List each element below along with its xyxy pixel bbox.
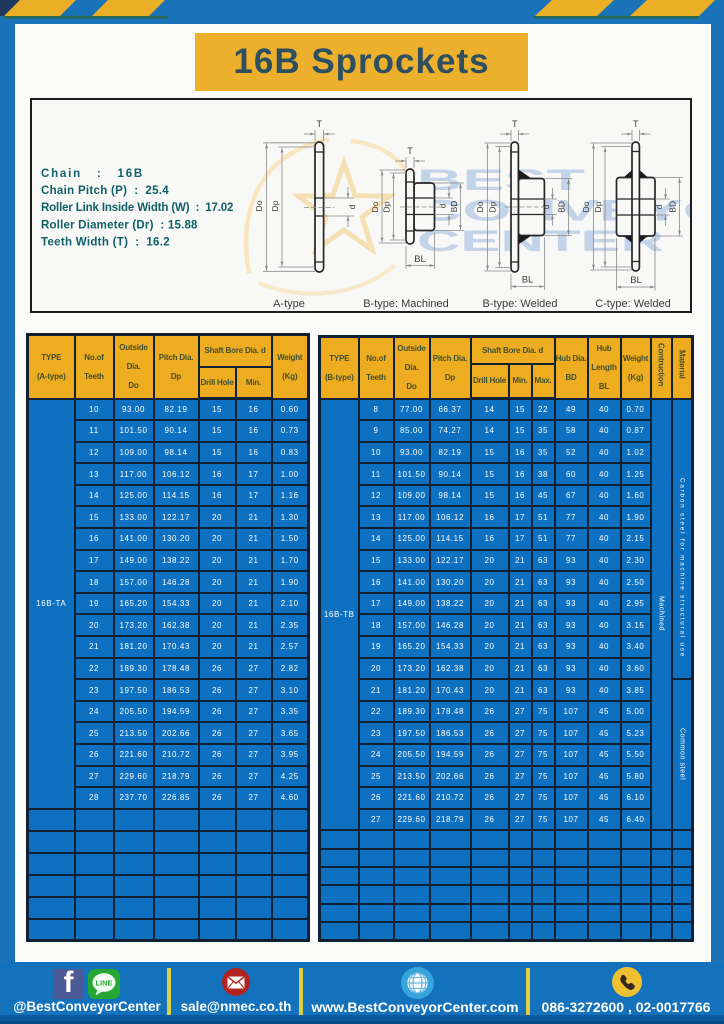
svg-text:BL: BL: [630, 275, 642, 286]
svg-text:Do: Do: [475, 201, 485, 212]
svg-text:d: d: [654, 204, 664, 209]
svg-text:T: T: [512, 119, 518, 129]
svg-text:d: d: [438, 203, 448, 208]
svg-text:T: T: [317, 119, 323, 129]
svg-text:C-type: Welded: C-type: Welded: [595, 298, 671, 310]
svg-text:B-type: Machined: B-type: Machined: [363, 298, 449, 310]
svg-text:Do: Do: [370, 201, 380, 212]
svg-text:Roller Diameter (Dr) : 15.88: Roller Diameter (Dr) : 15.88: [41, 219, 198, 231]
svg-text:A-type: A-type: [273, 298, 305, 310]
svg-text:d: d: [347, 204, 357, 209]
svg-text:BD: BD: [668, 201, 678, 213]
svg-text:Dp: Dp: [382, 201, 392, 212]
svg-text:BD: BD: [449, 201, 459, 213]
svg-text:T: T: [407, 146, 413, 156]
svg-text:Chain Pitch (P) : 25.4: Chain Pitch (P) : 25.4: [41, 185, 169, 197]
svg-text:BL: BL: [522, 275, 534, 286]
svg-text:Do: Do: [254, 200, 264, 211]
svg-text:Teeth Width (T) : 16.2: Teeth Width (T) : 16.2: [41, 237, 170, 249]
svg-text:Dp: Dp: [270, 200, 280, 211]
svg-text:Roller Link Inside Width (W): Roller Link Inside Width (W) : 17.02: [41, 202, 233, 214]
svg-text:T: T: [633, 119, 639, 129]
svg-text:BL: BL: [414, 254, 426, 265]
svg-text:Dp: Dp: [593, 201, 603, 212]
svg-text:Chain : 16B: Chain : 16B: [41, 168, 144, 180]
svg-text:Do: Do: [581, 201, 591, 212]
svg-text:B-type: Welded: B-type: Welded: [482, 298, 557, 310]
svg-text:d: d: [541, 204, 551, 209]
svg-text:BEST: BEST: [417, 164, 585, 197]
svg-text:Dp: Dp: [488, 201, 498, 212]
svg-text:BD: BD: [557, 201, 567, 213]
svg-text:LINE: LINE: [95, 979, 112, 988]
